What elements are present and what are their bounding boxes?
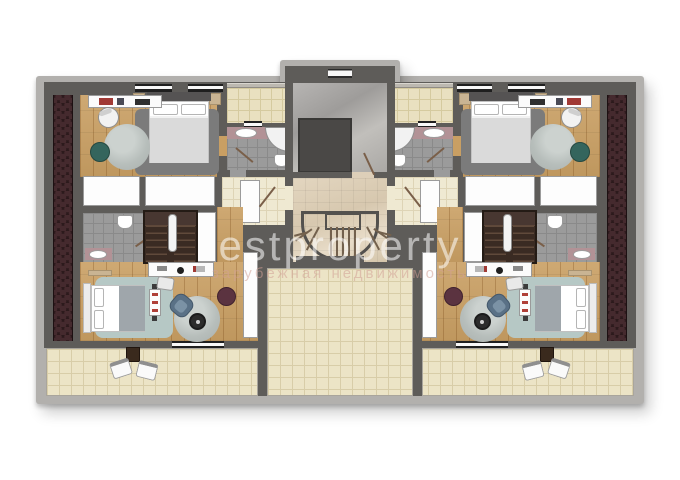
chair-seat [173, 299, 188, 314]
toilet [117, 215, 133, 229]
window [135, 84, 172, 92]
door-opening [285, 186, 293, 210]
desk-books [99, 98, 113, 105]
double-bed [149, 101, 209, 163]
closet-box [145, 176, 215, 206]
desk [466, 262, 532, 277]
bed-bench [568, 270, 592, 276]
floor-pouf [570, 142, 590, 162]
sink [423, 128, 445, 138]
wardrobe [240, 180, 260, 223]
wardrobe [243, 252, 258, 338]
internal-stair [143, 210, 198, 264]
pillow [474, 104, 499, 115]
double-bed [471, 101, 531, 163]
balcony-railing [227, 83, 288, 88]
double-bed [535, 285, 589, 332]
desk-chair [505, 276, 524, 291]
window [172, 341, 224, 348]
floor-pouf [444, 287, 463, 306]
floor-pouf [90, 142, 110, 162]
window [328, 69, 352, 78]
desk-item [513, 266, 523, 271]
window [188, 84, 223, 92]
stair-rail [168, 214, 177, 252]
desk [518, 95, 592, 108]
bed-headboard [83, 283, 91, 333]
center-terrace [267, 268, 413, 396]
duvet [472, 116, 530, 163]
stair-steps [174, 225, 195, 262]
desk [88, 95, 162, 108]
stair-steps [513, 225, 534, 262]
door-opening [434, 170, 450, 177]
entry-corridor [437, 207, 463, 264]
desk-item [496, 267, 503, 274]
stair-steps [146, 225, 167, 262]
closet-box [83, 176, 140, 206]
table-dot [480, 320, 484, 324]
wardrobe [464, 212, 483, 262]
wardrobe [197, 212, 216, 262]
window [508, 84, 545, 92]
pillow [94, 288, 104, 307]
internal-stair [482, 210, 537, 264]
closet-box [465, 176, 535, 206]
desk [148, 262, 214, 277]
wardrobe [422, 252, 437, 338]
entry-corridor [217, 207, 243, 264]
terrace-divider-wall [258, 268, 267, 396]
room-balcony [227, 88, 288, 123]
unit-right [387, 0, 642, 480]
desk-item [475, 266, 487, 272]
rack-items [522, 293, 528, 312]
desk-item [117, 98, 124, 105]
closet-box [540, 176, 597, 206]
roof-strip [53, 95, 73, 341]
sink [235, 128, 257, 138]
roof-strip [607, 95, 627, 341]
magazine-rack [149, 289, 161, 316]
pillow [94, 310, 104, 329]
desk-item [193, 266, 205, 272]
floor-pouf [217, 287, 236, 306]
sink [89, 250, 107, 259]
side-table [474, 313, 491, 330]
desk-item [135, 99, 150, 105]
chair-back [99, 108, 113, 117]
sink [573, 250, 591, 259]
pillow [576, 310, 586, 329]
desk-books [567, 98, 581, 105]
double-bed [91, 285, 145, 332]
toilet [547, 215, 563, 229]
pillow [181, 104, 206, 115]
balcony-railing [392, 83, 453, 88]
bed-bench [88, 270, 112, 276]
chair-seat [491, 299, 506, 314]
blanket [535, 286, 561, 331]
duvet [150, 116, 208, 163]
desk-item [157, 266, 167, 271]
round-rug [530, 124, 576, 170]
window [456, 341, 508, 348]
bed-headboard [589, 283, 597, 333]
floor-plan-canvas: estproperty зарубежная недвижимость [0, 0, 680, 480]
stair-rail [503, 214, 512, 252]
terrace-divider-wall [413, 268, 422, 396]
desk-chair [156, 276, 175, 291]
room-balcony [392, 88, 453, 123]
window [457, 84, 492, 92]
magazine-rack [519, 289, 531, 316]
side-table [189, 313, 206, 330]
rack-items [152, 293, 158, 312]
blanket [119, 286, 145, 331]
desk-item [556, 98, 563, 105]
round-rug [104, 124, 150, 170]
door-opening [230, 170, 246, 177]
elevator-shaft [298, 118, 352, 173]
unit-left [38, 0, 293, 480]
desk-item [177, 267, 184, 274]
desk-item [530, 99, 545, 105]
table-dot [196, 320, 200, 324]
pillow [576, 288, 586, 307]
door-opening [387, 186, 395, 210]
